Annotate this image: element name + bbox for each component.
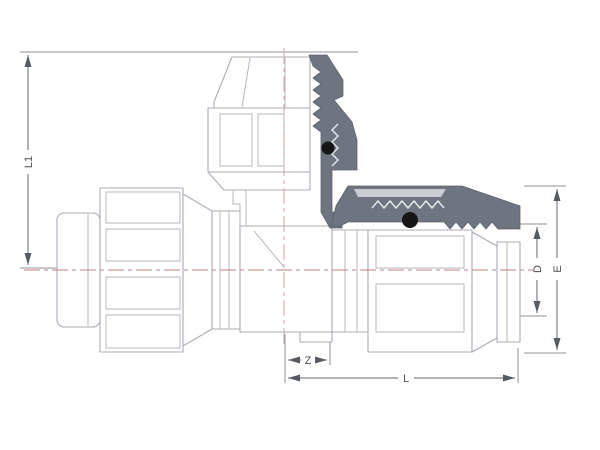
o-ring-right-outlet [402, 212, 418, 228]
dimension-label-d: D [532, 265, 544, 273]
dimension-label-z: Z [305, 355, 312, 367]
dimension-z: Z [288, 355, 327, 367]
dimension-label-l: L [403, 373, 409, 385]
dimension-label-l1: L1 [23, 156, 35, 168]
right-outlet [332, 230, 520, 352]
fitting-drawing-svg: L1 D E Z L [0, 0, 600, 450]
right-outlet-section-cutaway [331, 186, 520, 229]
section-insert-strip [354, 189, 446, 197]
branch-outlet [208, 57, 310, 226]
dimension-e: E [552, 189, 564, 350]
dimension-l: L [288, 373, 515, 385]
technical-drawing-page: L1 D E Z L [0, 0, 600, 450]
dimension-d: D [532, 227, 544, 313]
center-body [240, 226, 332, 342]
dimension-l1: L1 [23, 55, 35, 265]
o-ring-branch [322, 142, 335, 155]
dimension-label-e: E [552, 265, 564, 272]
